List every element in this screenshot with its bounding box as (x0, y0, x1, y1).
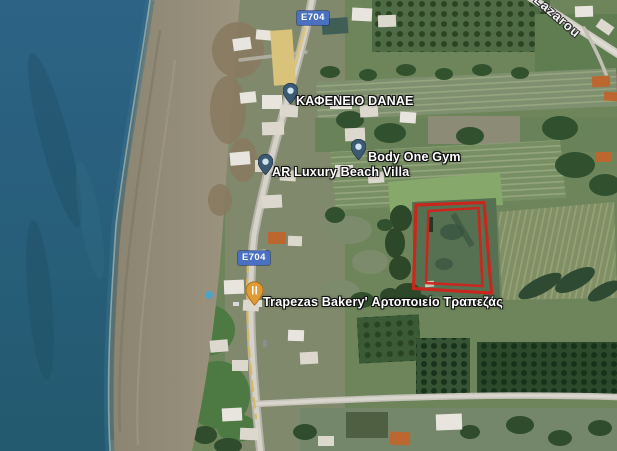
place-label-kafeneio-danae[interactable]: ΚΑΦΕΝΕΙΟ DANAE (296, 95, 414, 108)
satellite-basemap (0, 0, 617, 451)
place-label-trapezas-bakery[interactable]: Trapezas Bakery' Αρτοποιείο Τραπεζάς (263, 296, 503, 309)
satellite-map-view: E704 E704 Lazarou ΚΑΦΕΝΕΙΟ DANAE Body On… (0, 0, 617, 451)
route-badge-e704-south: E704 (238, 251, 270, 265)
route-badge-e704-north: E704 (297, 11, 329, 25)
place-label-body-one-gym[interactable]: Body One Gym (368, 151, 461, 164)
place-label-ar-luxury-beach-villa[interactable]: AR Luxury Beach Villa (272, 166, 409, 179)
